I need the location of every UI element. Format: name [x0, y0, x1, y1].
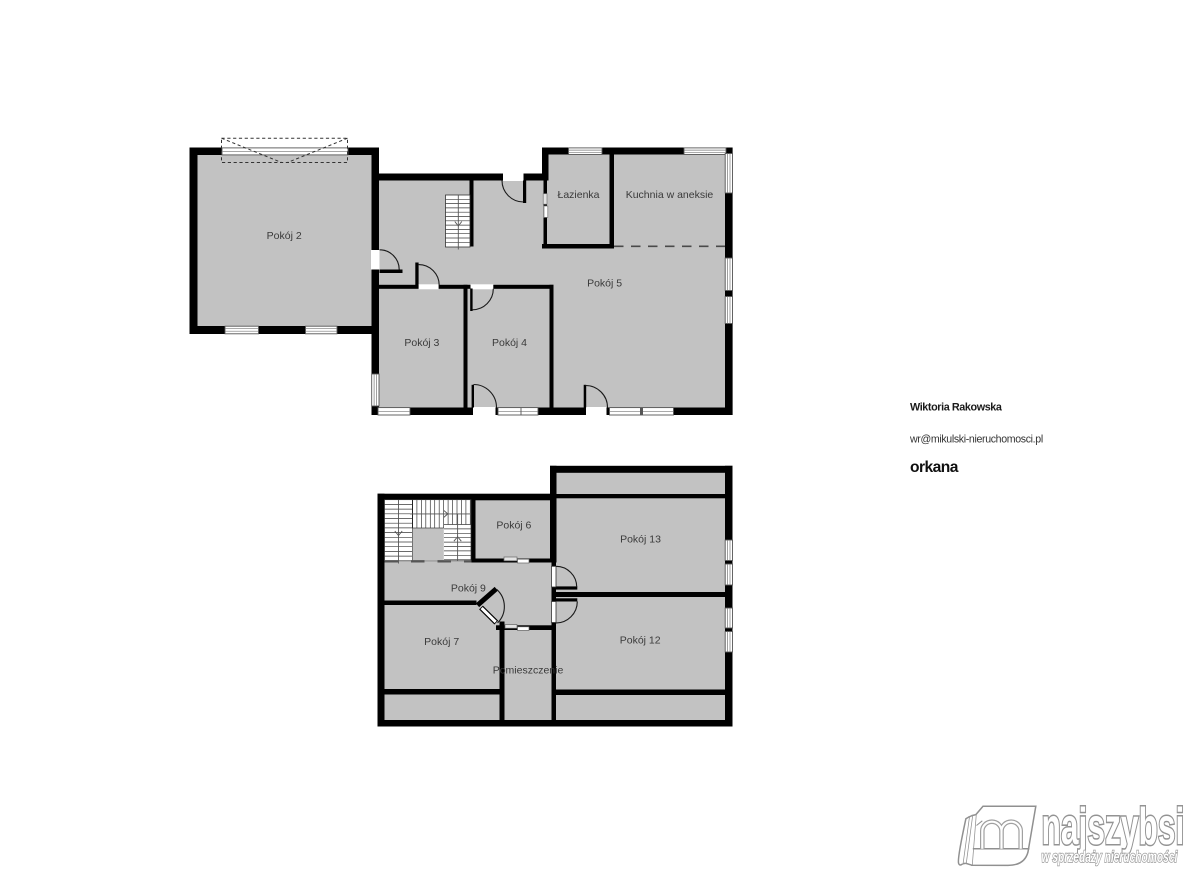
svg-text:Kuchnia w aneksie: Kuchnia w aneksie: [626, 189, 714, 201]
svg-text:Pokój 2: Pokój 2: [267, 230, 302, 242]
svg-text:Pokój 3: Pokój 3: [404, 337, 439, 349]
svg-text:wr@mikulski-nieruchomosci.pl: wr@mikulski-nieruchomosci.pl: [909, 434, 1043, 446]
svg-text:Pokój 4: Pokój 4: [492, 337, 527, 349]
svg-text:Pokój 9: Pokój 9: [451, 583, 486, 595]
svg-text:Pokój 7: Pokój 7: [424, 636, 459, 648]
svg-text:orkana: orkana: [910, 459, 959, 476]
svg-text:Łazienka: Łazienka: [557, 189, 599, 201]
svg-text:Pokój 12: Pokój 12: [620, 635, 661, 647]
svg-text:Pokój 6: Pokój 6: [496, 519, 531, 531]
svg-text:Pokój 13: Pokój 13: [620, 534, 661, 546]
svg-text:Pomieszczenie: Pomieszczenie: [493, 664, 564, 676]
svg-text:w sprzedaży nieruchomości: w sprzedaży nieruchomości: [1042, 848, 1178, 866]
svg-text:Pokój 5: Pokój 5: [587, 278, 622, 290]
svg-text:Wiktoria Rakowska: Wiktoria Rakowska: [910, 402, 1003, 414]
